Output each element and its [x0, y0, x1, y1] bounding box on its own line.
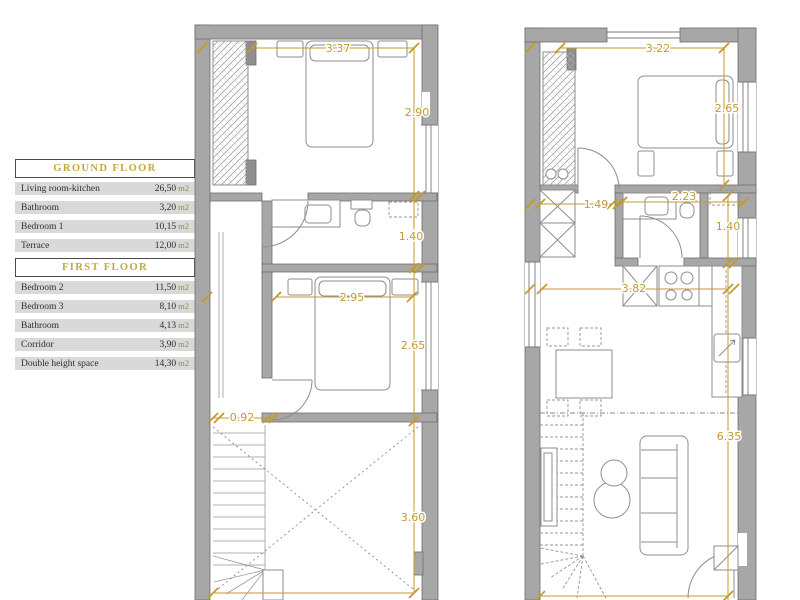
sofa [640, 436, 688, 555]
floorplan-page: GROUND FLOOR Living room-kitchen 26,50m2… [0, 0, 800, 600]
dimension-label: 2.23 [672, 190, 697, 203]
bed-bedroom2 [277, 41, 407, 147]
dimension-label: 3.22 [646, 42, 671, 55]
dimension-label: 1.49 [584, 198, 609, 211]
first-floor-plan: 3.37 2.90 1.40 2.95 2.65 0.92 3.60 [195, 25, 438, 600]
tv-unit [541, 448, 557, 526]
dimension-label: 6.35 [717, 430, 742, 443]
coffee-tables [594, 460, 630, 518]
bathroom-first-floor [262, 200, 418, 247]
ground-floor-plan: 3.22 2.65 1.49 2.23 1.40 3.82 6.35 [525, 28, 756, 600]
dimension-label: 2.65 [715, 102, 740, 115]
dining-table [547, 328, 612, 416]
wardrobe-bedroom2 [213, 41, 248, 185]
dimension-label: 3.60 [401, 511, 426, 524]
dimension-label: 0.92 [230, 411, 255, 424]
dimension-label: 3.37 [326, 42, 351, 55]
double-height-space [213, 427, 418, 593]
dimension-label: 2.90 [405, 106, 430, 119]
dimension-label: 1.40 [399, 230, 424, 243]
dimension-label: 1.40 [716, 220, 741, 233]
floor-plans-drawing: 3.37 2.90 1.40 2.95 2.65 0.92 3.60 [0, 0, 800, 600]
shaft-boxes [540, 190, 575, 257]
wardrobe-bedroom1 [543, 52, 575, 185]
dimension-label: 3.82 [622, 282, 647, 295]
bed-bedroom1 [578, 76, 733, 189]
dimension-label: 2.65 [401, 339, 426, 352]
entrance-door [688, 546, 738, 598]
staircase-first-floor [213, 425, 283, 600]
stairwell-railing [219, 232, 223, 398]
dimension-label: 2.95 [340, 291, 365, 304]
